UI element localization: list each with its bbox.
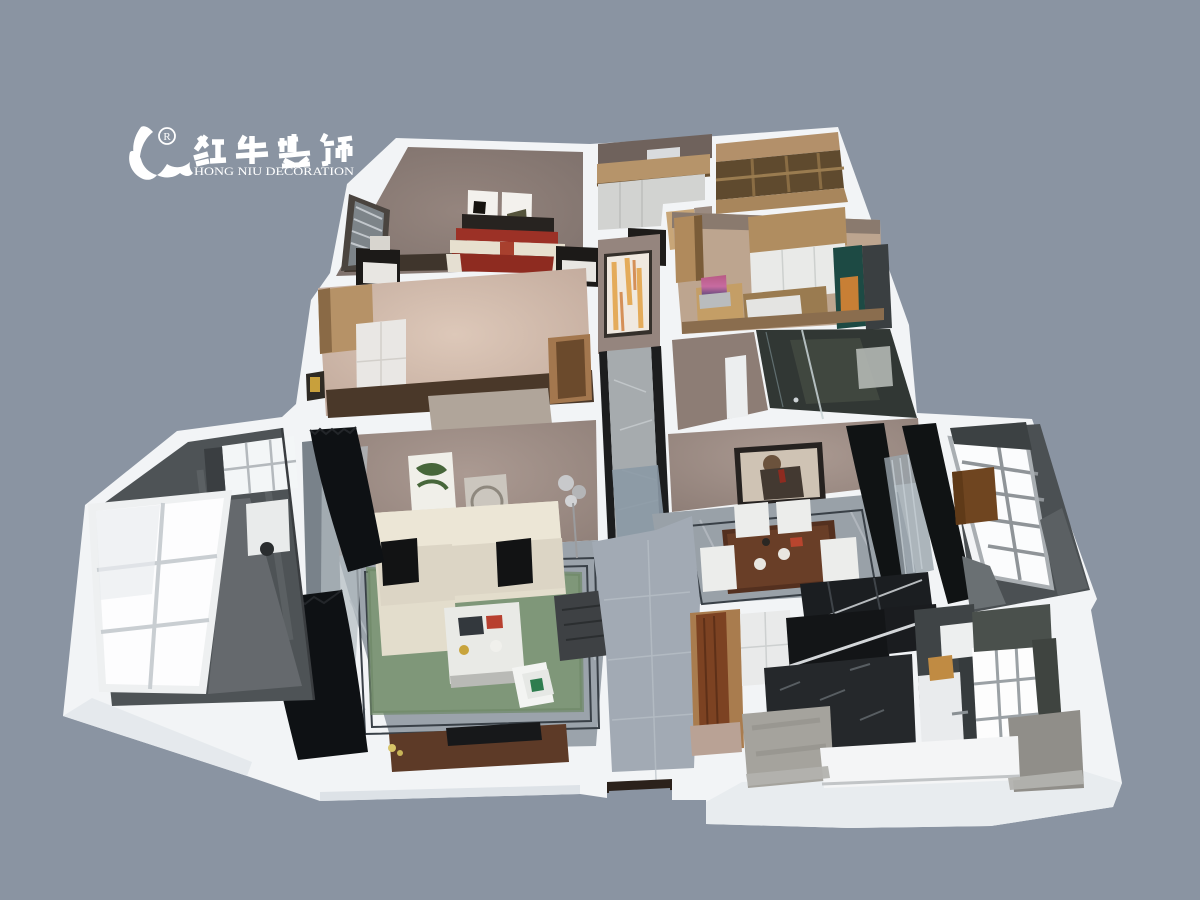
svg-text:R: R [163,131,171,143]
svg-text:HONG NIU DECORATION: HONG NIU DECORATION [194,166,355,178]
